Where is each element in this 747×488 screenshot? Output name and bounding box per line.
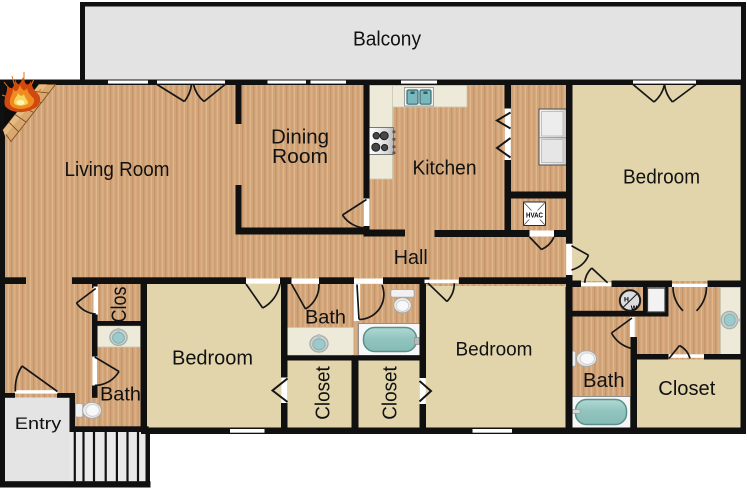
svg-text:Bedroom: Bedroom — [623, 167, 700, 189]
svg-text:Closet: Closet — [658, 377, 715, 400]
svg-text:Bedroom: Bedroom — [172, 348, 253, 370]
svg-text:Entry: Entry — [15, 414, 62, 433]
svg-text:Room: Room — [272, 146, 328, 168]
svg-text:Hall: Hall — [394, 247, 428, 269]
svg-text:H: H — [624, 296, 629, 303]
svg-text:Balcony: Balcony — [353, 29, 421, 51]
svg-text:Bath: Bath — [305, 308, 346, 329]
svg-text:Living Room: Living Room — [65, 159, 170, 181]
svg-text:HVAC: HVAC — [526, 213, 543, 220]
svg-text:Bath: Bath — [583, 370, 625, 392]
svg-text:Closet: Closet — [380, 366, 402, 420]
svg-text:W: W — [631, 305, 638, 312]
svg-text:Bedroom: Bedroom — [456, 340, 533, 361]
svg-text:Closet: Closet — [313, 366, 335, 420]
svg-text:Kitchen: Kitchen — [413, 158, 477, 180]
svg-text:Clos: Clos — [107, 287, 131, 323]
svg-text:Bath: Bath — [100, 385, 141, 406]
